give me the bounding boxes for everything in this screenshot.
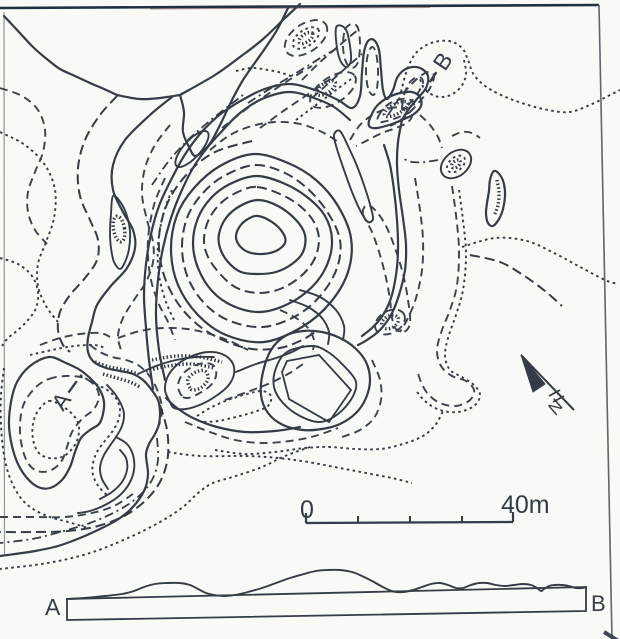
svg-text:A: A xyxy=(45,594,61,620)
svg-text:B: B xyxy=(591,591,606,616)
svg-text:40m: 40m xyxy=(501,491,550,519)
svg-text:0: 0 xyxy=(300,496,314,524)
